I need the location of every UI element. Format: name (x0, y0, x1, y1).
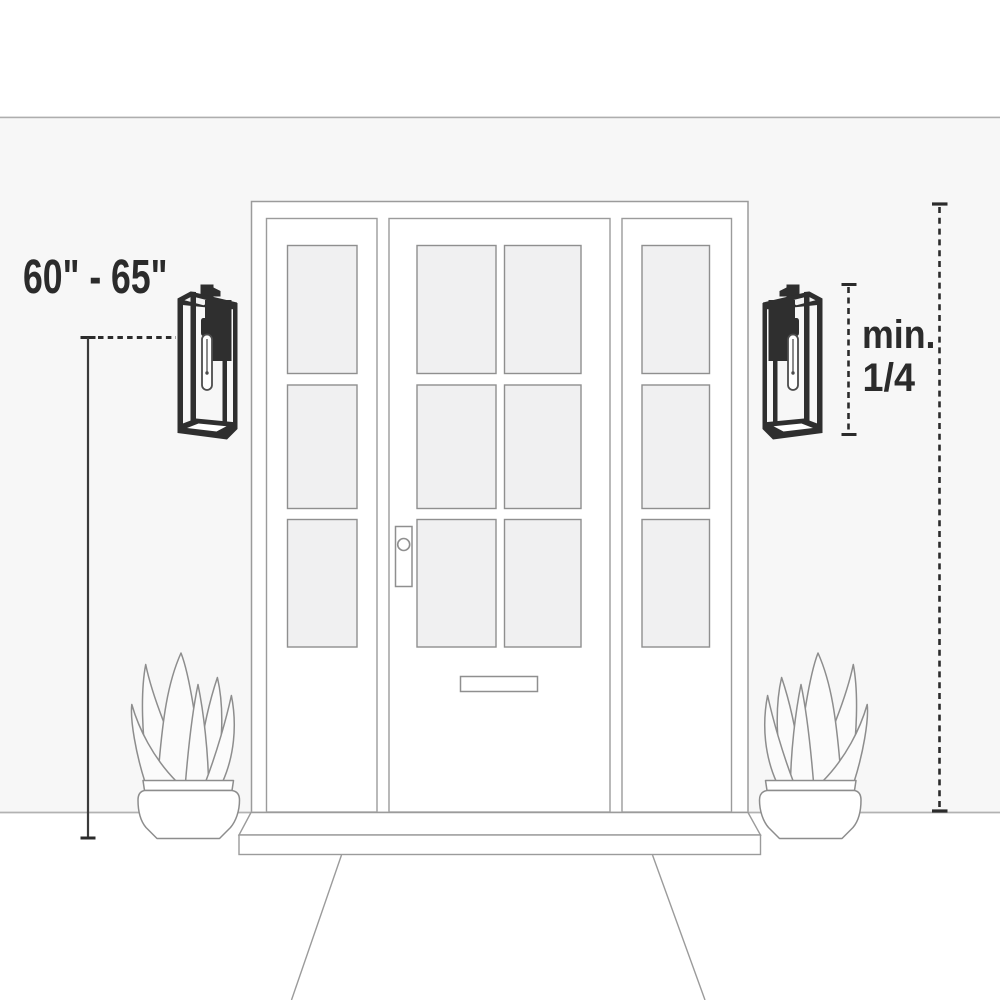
svg-text:min.: min. (862, 313, 936, 357)
svg-text:60" - 65": 60" - 65" (23, 250, 168, 304)
svg-text:1/4: 1/4 (863, 356, 916, 400)
